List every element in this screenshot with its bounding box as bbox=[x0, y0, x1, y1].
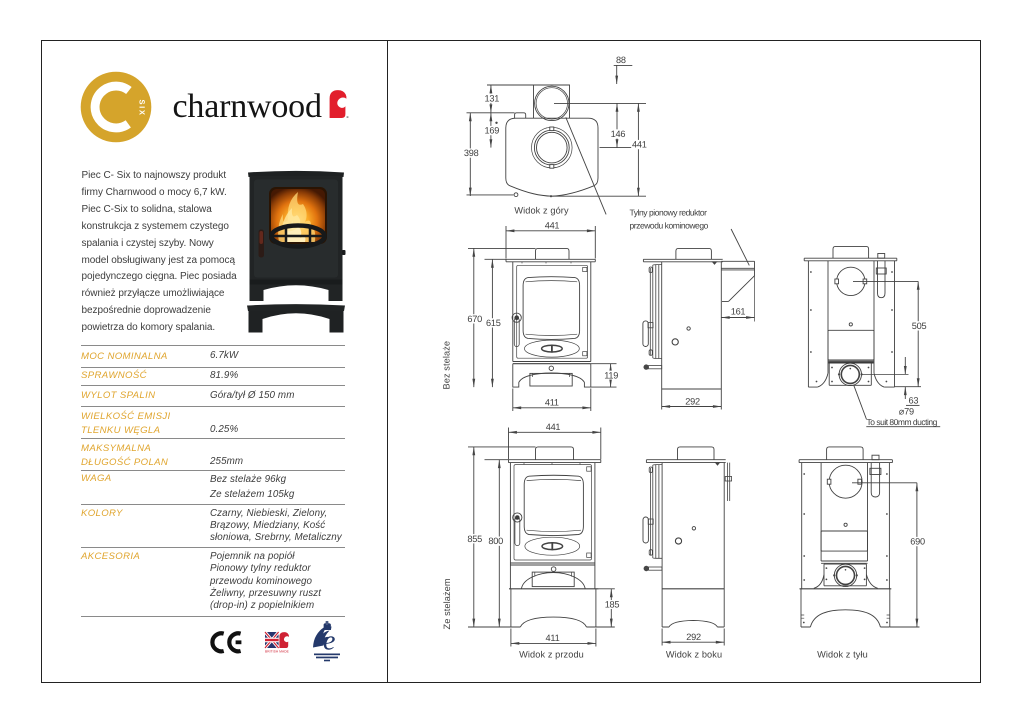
svg-text:411: 411 bbox=[546, 633, 560, 643]
svg-text:przewodu kominowego: przewodu kominowego bbox=[630, 221, 709, 231]
svg-text:441: 441 bbox=[546, 422, 561, 432]
svg-text:146: 146 bbox=[611, 129, 626, 139]
svg-text:670: 670 bbox=[467, 314, 482, 324]
svg-text:63: 63 bbox=[909, 395, 919, 405]
svg-text:292: 292 bbox=[685, 396, 700, 406]
svg-text:⌀79: ⌀79 bbox=[899, 406, 914, 416]
svg-text:855: 855 bbox=[467, 534, 482, 544]
svg-text:Bez stelaże: Bez stelaże bbox=[442, 341, 452, 390]
svg-text:88: 88 bbox=[616, 55, 626, 65]
svg-text:To suit 80mm ducting: To suit 80mm ducting bbox=[867, 417, 938, 427]
svg-text:185: 185 bbox=[605, 600, 620, 610]
svg-text:398: 398 bbox=[464, 148, 479, 158]
svg-text:Widok z przodu: Widok z przodu bbox=[519, 649, 584, 659]
svg-text:800: 800 bbox=[488, 536, 503, 546]
svg-text:441: 441 bbox=[545, 221, 560, 231]
svg-text:292: 292 bbox=[686, 632, 701, 642]
svg-text:Ze stelażem: Ze stelażem bbox=[442, 578, 452, 629]
svg-text:169: 169 bbox=[485, 126, 500, 136]
svg-text:505: 505 bbox=[912, 321, 927, 331]
svg-text:Widok z góry: Widok z góry bbox=[514, 206, 569, 216]
svg-text:Widok z boku: Widok z boku bbox=[666, 649, 722, 659]
svg-text:Widok z tyłu: Widok z tyłu bbox=[817, 649, 868, 659]
svg-text:690: 690 bbox=[910, 537, 925, 547]
svg-text:Tylny pionowy reduktor: Tylny pionowy reduktor bbox=[630, 207, 708, 217]
svg-text:131: 131 bbox=[485, 93, 500, 103]
svg-text:411: 411 bbox=[545, 398, 559, 408]
svg-text:161: 161 bbox=[731, 307, 746, 317]
svg-text:441: 441 bbox=[632, 140, 647, 150]
svg-text:119: 119 bbox=[604, 370, 618, 380]
svg-text:615: 615 bbox=[486, 318, 501, 328]
